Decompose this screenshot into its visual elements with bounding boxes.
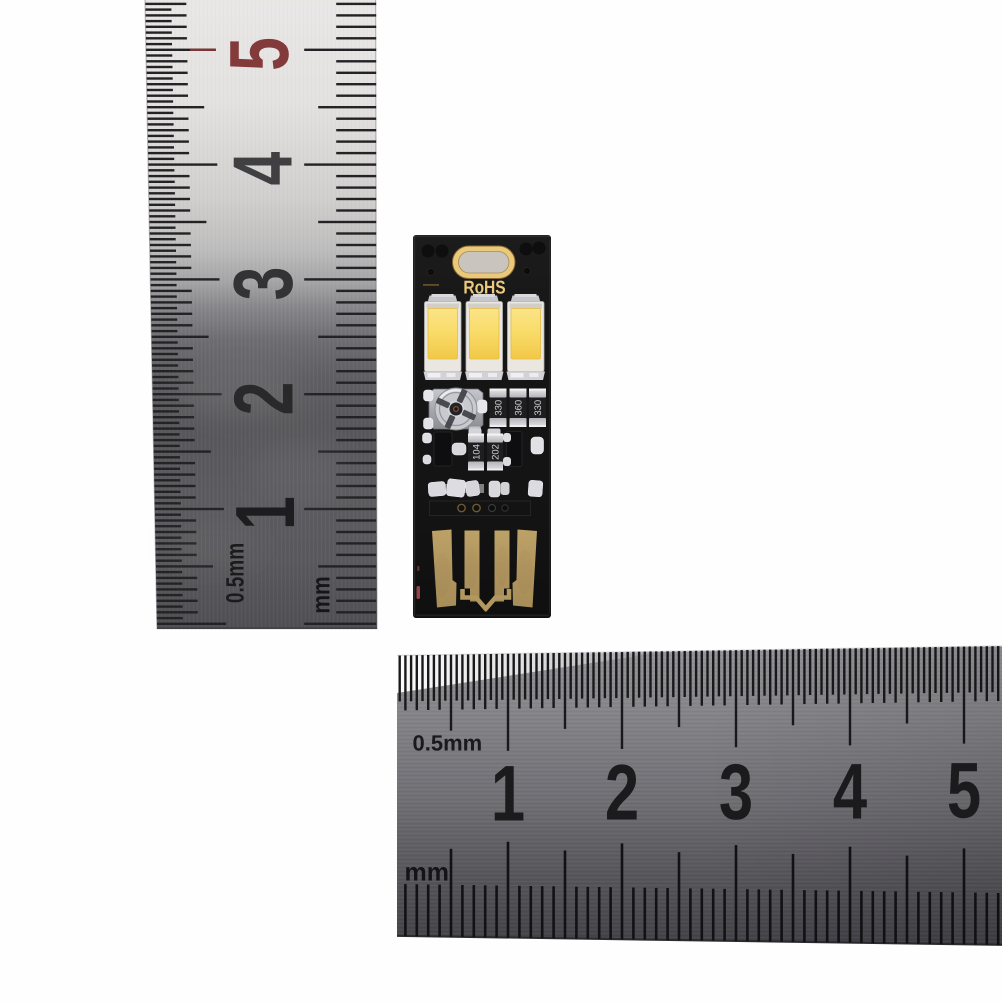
svg-text:5: 5	[212, 37, 306, 71]
svg-text:mm: mm	[405, 859, 449, 887]
svg-text:360: 360	[513, 400, 524, 416]
svg-text:1: 1	[218, 496, 312, 530]
svg-text:104: 104	[471, 444, 482, 460]
svg-text:4: 4	[833, 746, 867, 835]
svg-text:2: 2	[605, 748, 639, 837]
svg-text:mm: mm	[308, 576, 336, 613]
svg-text:2: 2	[217, 382, 311, 416]
svg-text:3: 3	[719, 747, 753, 836]
svg-text:202: 202	[490, 444, 501, 460]
svg-text:330: 330	[533, 400, 544, 416]
svg-text:0.5mm: 0.5mm	[413, 731, 483, 756]
svg-text:3: 3	[216, 267, 310, 301]
svg-text:330: 330	[493, 400, 504, 416]
svg-text:0.5mm: 0.5mm	[222, 543, 250, 603]
svg-text:1: 1	[491, 748, 525, 837]
svg-text:4: 4	[216, 151, 310, 185]
svg-text:5: 5	[947, 746, 981, 835]
